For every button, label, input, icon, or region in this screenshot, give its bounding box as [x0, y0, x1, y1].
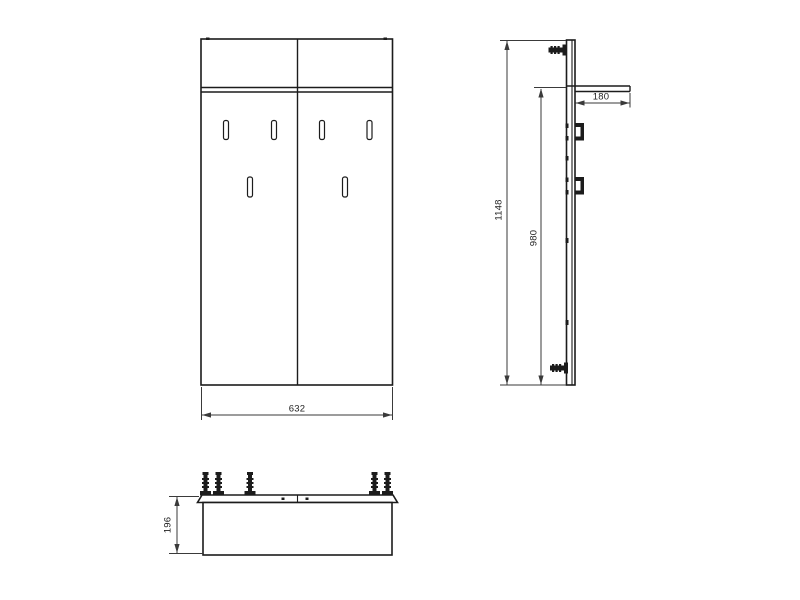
- dimension-bench-depth: 196: [163, 497, 204, 554]
- front-view: 632: [201, 38, 393, 421]
- dimension-label-shelf-depth: 180: [593, 92, 609, 103]
- mounting-screw-bottom-icon: [550, 363, 568, 374]
- coat-hook-lower-icon: [575, 177, 585, 195]
- dimension-label-total-height: 1148: [494, 199, 505, 220]
- coat-hook-upper-icon: [575, 123, 585, 141]
- bench-outline: [203, 503, 392, 556]
- dowel-mark: [566, 320, 569, 325]
- dowel-mark: [566, 178, 569, 183]
- hook-slot: [248, 177, 253, 197]
- dimension-arrow-right: [621, 100, 630, 105]
- screw-icon: [200, 472, 211, 496]
- dowel-tick: [384, 38, 388, 41]
- dimension-arrow-top: [504, 41, 509, 50]
- dimension-arrow-left: [202, 412, 211, 417]
- technical-drawing: 632: [0, 0, 800, 600]
- cabinet-outline: [201, 39, 393, 385]
- dowel-tick: [206, 38, 210, 41]
- dimension-panel-height: 980: [529, 88, 567, 385]
- screw-icon: [213, 472, 224, 496]
- hook-slot: [367, 121, 372, 140]
- dowel-mark: [282, 498, 285, 501]
- dimension-arrow-top: [538, 89, 543, 98]
- drawing-canvas: 632: [0, 0, 800, 600]
- dowel-mark: [566, 136, 569, 141]
- dimension-arrow-top: [174, 497, 179, 506]
- dowel-mark: [566, 238, 569, 243]
- hook-slot: [272, 121, 277, 140]
- dimension-arrow-bottom: [174, 544, 179, 553]
- dimension-front-width: 632: [202, 387, 393, 420]
- dimension-shelf-depth: 180: [576, 92, 631, 108]
- dowel-mark: [566, 124, 569, 129]
- side-view: 1148 980 180: [494, 40, 631, 385]
- top-view: 196: [163, 472, 398, 555]
- hook-slot: [320, 121, 325, 140]
- dimension-label-bench-depth: 196: [163, 517, 174, 533]
- screw-icon: [382, 472, 393, 496]
- dowel-mark: [306, 498, 309, 501]
- dimension-label-front-width: 632: [289, 404, 305, 415]
- dimension-label-panel-height: 980: [529, 230, 540, 246]
- hook-slot: [224, 121, 229, 140]
- dimension-arrow-bottom: [504, 376, 509, 385]
- dimension-total-height: 1148: [494, 41, 567, 386]
- dimension-arrow-left: [576, 100, 585, 105]
- dimension-arrow-right: [383, 412, 392, 417]
- hook-slot: [343, 177, 348, 197]
- screw-icon: [369, 472, 380, 496]
- dimension-arrow-bottom: [538, 376, 543, 385]
- bench-screws: [200, 472, 393, 496]
- side-panel-outline: [567, 40, 576, 385]
- dowel-mark: [566, 190, 569, 195]
- screw-icon: [245, 472, 256, 496]
- dowel-mark: [566, 156, 569, 161]
- mounting-screw-top-icon: [549, 45, 567, 56]
